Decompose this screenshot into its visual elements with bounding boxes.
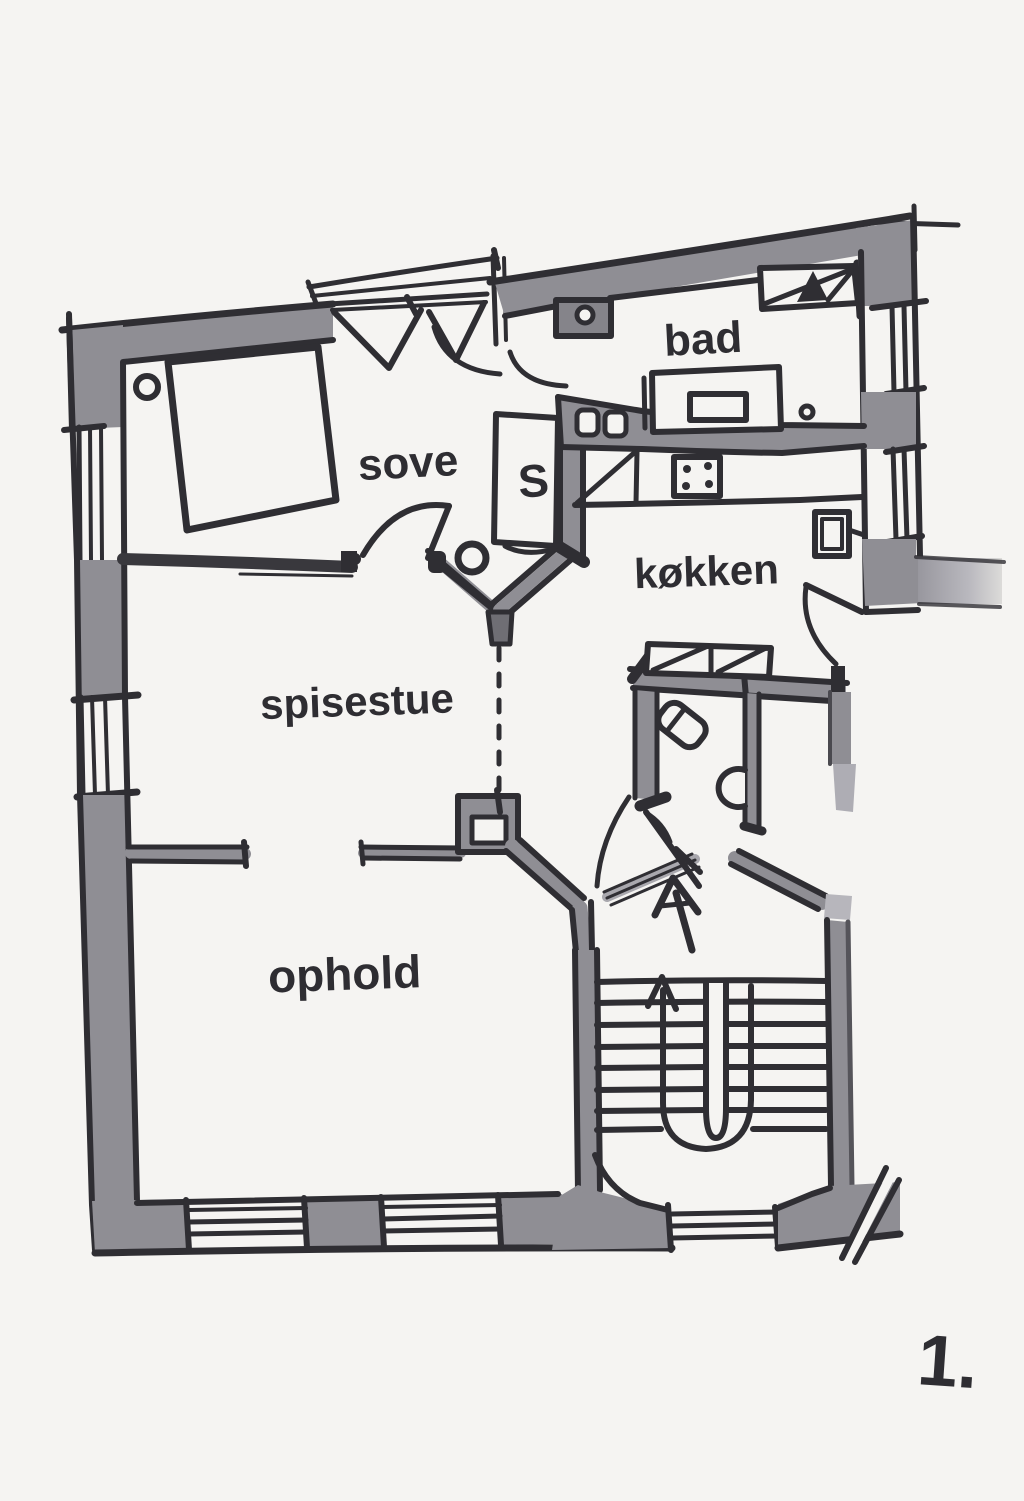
svg-text:1.: 1. — [915, 1320, 980, 1404]
svg-text:sove: sove — [357, 436, 460, 490]
svg-text:S: S — [516, 454, 550, 508]
svg-text:ophold: ophold — [267, 945, 422, 1002]
svg-text:spisestue: spisestue — [259, 674, 454, 728]
svg-text:køkken: køkken — [633, 545, 779, 597]
svg-text:bad: bad — [663, 313, 744, 366]
